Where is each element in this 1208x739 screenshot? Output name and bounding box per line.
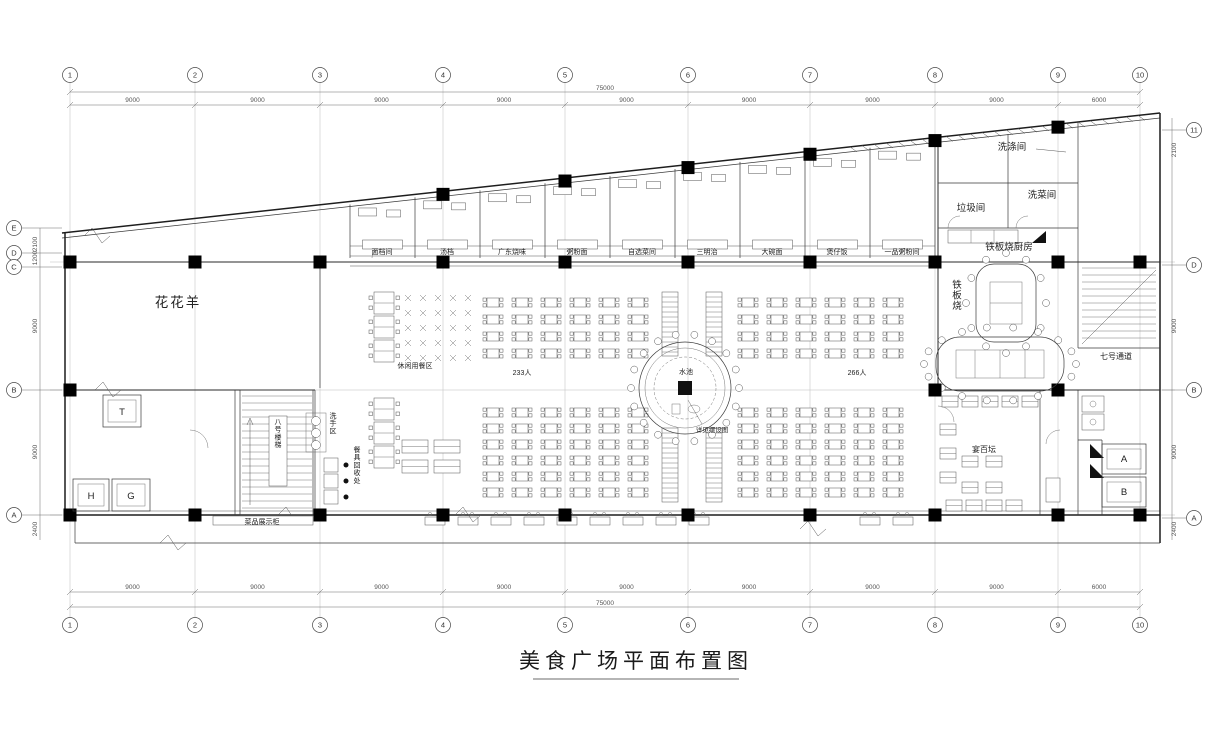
dining-table [483,298,503,307]
chair [396,426,400,430]
seat [1068,348,1075,355]
dining-table [738,456,758,465]
roof-hatch [898,142,905,147]
dim-segment-right: 2100 [1171,142,1178,157]
column-marker [929,384,942,397]
stall-counter [428,240,468,249]
grid-bubble-bottom-3: 3 [318,621,322,630]
grid-bubble-top-6: 6 [686,71,690,80]
dim-segment: 9000 [250,584,265,591]
dining-table [796,424,816,433]
dining-table [738,349,758,358]
dim-segment: 9000 [374,584,389,591]
wall-table [590,517,610,525]
dim-segment: 9000 [865,584,880,591]
dining-table [541,424,561,433]
dining-table [570,315,590,324]
seat [672,438,679,445]
sink-counter [1082,414,1104,430]
column-marker [1134,509,1147,522]
chair [396,450,400,454]
stall-counter [558,240,598,249]
roof-hatch [886,143,893,148]
dining-table [512,315,532,324]
grid-bubble-right-D: D [1191,261,1197,270]
dining-table [767,315,787,324]
dim-segment: 9000 [250,97,265,104]
dining-table [512,488,532,497]
column-marker [682,509,695,522]
wall-table [893,517,913,525]
dining-table [854,349,874,358]
dining-table [738,488,758,497]
column-marker [189,256,202,269]
x-chair [450,355,456,361]
roof-hatch [850,147,857,152]
roof-hatch [874,144,881,149]
dining-table [883,349,903,358]
column-marker [559,256,572,269]
x-chair [465,355,471,361]
dining-table [767,424,787,433]
seat [631,366,638,373]
x-chair [420,310,426,316]
dining-table [825,488,845,497]
dining-table [483,488,503,497]
stall-equipment [879,151,897,159]
dining-table [483,440,503,449]
column-marker [1052,256,1065,269]
seat [1037,275,1044,282]
seat [968,325,975,332]
seat [631,403,638,410]
x-chair [435,310,441,316]
x-chair [405,355,411,361]
column-marker [804,509,817,522]
dining-table [883,408,903,417]
leader-washroom [1036,149,1066,152]
elevator-b-label: B [1121,487,1127,498]
dining-table [628,440,648,449]
stair-8-label: 八号楼梯 [275,419,282,449]
dining-table [854,315,874,324]
column-marker [559,509,572,522]
seat [628,385,635,392]
wall-table [623,517,643,525]
dim-segment: 6000 [1092,584,1107,591]
seat [655,338,662,345]
dining-table [738,472,758,481]
roof-hatch [1090,121,1097,126]
column-marker [1052,384,1065,397]
pool-note-label: 详见摆设图 [696,425,729,434]
chair [396,412,400,416]
seat [672,331,679,338]
dining-table [483,332,503,341]
dining-table [512,349,532,358]
dining-table [628,456,648,465]
overall-dim-top: 75000 [596,85,614,92]
x-chair [450,295,456,301]
chair [369,402,373,406]
drawing-title: 美食广场平面布置图 [519,650,753,673]
x-chair [435,325,441,331]
stall-equipment [424,201,442,209]
tableware-return-label: 餐具回收处 [354,445,361,485]
chair [369,296,373,300]
dining-table [541,298,561,307]
dining-table [599,488,619,497]
stall-equipment [489,194,507,202]
roof-hatch [1042,126,1049,131]
x-chair [465,295,471,301]
dining-table [883,440,903,449]
roof-hatch [946,136,953,141]
dim-segment: 9000 [497,97,512,104]
dining-table [599,472,619,481]
roof-hatch [1114,118,1121,123]
x-chair [405,310,411,316]
brand-area-label: 花花羊 [155,295,202,310]
x-chair [405,295,411,301]
seat [1068,373,1075,380]
dining-area-label: 休闲用餐区 [398,361,433,370]
grid-bubble-top-2: 2 [193,71,197,80]
x-chair [420,355,426,361]
seat [1023,256,1030,263]
dining-table [883,456,903,465]
roof-hatch [970,134,977,139]
wash-room-label: 洗涤间 [998,141,1027,153]
teppanyaki-area-label: 铁板烧 [952,279,962,312]
roof-hatch [994,131,1001,136]
dining-table [738,332,758,341]
pool-label: 水池 [679,367,693,376]
chair [369,306,373,310]
grid-bubble-top-8: 8 [933,71,937,80]
wall-table [656,517,676,525]
dining-table [512,440,532,449]
dining-table [825,424,845,433]
column-marker [1134,256,1147,269]
teppanyaki-counter-bottom [936,337,1064,391]
section-mark-icon [1032,231,1046,243]
dining-table [854,488,874,497]
grid-bubble-bottom-7: 7 [808,621,812,630]
dim-segment: 9000 [497,584,512,591]
stall-counter [493,240,533,249]
dining-table [541,488,561,497]
elevator-t-label: T [119,407,125,418]
stall-label-8: 煲仔饭 [827,247,848,256]
break-symbol [160,535,186,550]
dining-table [883,315,903,324]
dining-table [628,298,648,307]
sink-counter [1082,396,1104,412]
chair [369,320,373,324]
dining-table [541,332,561,341]
dining-table [483,315,503,324]
dim-segment: 9000 [865,97,880,104]
x-chair [465,310,471,316]
chair [369,426,373,430]
column-marker [64,384,77,397]
stall-equipment [907,153,921,160]
seat [983,324,990,331]
dining-table [854,408,874,417]
dim-segment: 9000 [742,97,757,104]
stall-counter [753,240,793,249]
dining-table [570,298,590,307]
chair [369,412,373,416]
seat [1035,393,1042,400]
dining-table [599,440,619,449]
dining-table [796,472,816,481]
stall-label-5: 自选菜间 [628,247,656,256]
dining-table [854,298,874,307]
column-marker [804,148,817,161]
stall-counter [883,240,923,249]
seat [732,366,739,373]
dining-table [767,472,787,481]
dining-table [825,315,845,324]
floor-plan-drawing: 1122334455667788991010EDCBA11DBA90009000… [0,0,1208,739]
grid-bubble-top-4: 4 [441,71,445,80]
hand-wash-label: 洗手区 [330,411,337,435]
dining-table [767,298,787,307]
elevator-h-label: H [88,491,95,502]
dining-table [796,456,816,465]
seat [921,361,928,368]
dining-table [599,408,619,417]
dim-segment: 9000 [619,584,634,591]
dim-segment: 6000 [1092,97,1107,104]
column-marker [559,175,572,188]
seat [640,350,647,357]
grid-bubble-bottom-2: 2 [193,621,197,630]
dining-table [483,456,503,465]
grid-bubble-right-A: A [1191,514,1196,523]
dining-table [767,456,787,465]
wall-table [860,517,880,525]
chair [396,306,400,310]
roof-hatch [1066,123,1073,128]
seat [655,431,662,438]
x-chair [465,340,471,346]
roof-hatch [1006,130,1013,135]
stall-equipment [619,180,637,188]
dining-table [767,349,787,358]
seat [963,300,970,307]
capacity-left-label: 233人 [513,369,532,377]
grid-bubble-left-B: B [11,386,16,395]
dim-segment-left: 9000 [32,444,39,459]
column-marker [1052,509,1065,522]
dining-table [599,424,619,433]
dining-table [483,472,503,481]
dining-table [854,456,874,465]
dining-table [483,424,503,433]
cabinet [1046,478,1060,502]
chair [369,450,373,454]
x-chair [450,325,456,331]
dim-segment: 9000 [374,97,389,104]
tableware-return-fixture [324,458,349,504]
dining-table [883,298,903,307]
dining-table [767,408,787,417]
grid-bubble-right-11: 11 [1190,126,1198,135]
roof-hatch [1078,122,1085,127]
banquet-area-label: 宴百坛 [972,444,996,454]
teppanyaki-kitchen-label: 铁板烧厨房 [985,241,1033,253]
dining-table [738,315,758,324]
column-marker [64,509,77,522]
roof-hatch [1138,115,1145,120]
stall-label-2: 汤档 [440,247,454,256]
grid-bubble-left-D: D [11,249,17,258]
dining-table [628,315,648,324]
column-marker [314,509,327,522]
stall-label-9: 一品粥粉间 [885,247,920,256]
dining-table [796,332,816,341]
column-marker [437,509,450,522]
dining-table [599,298,619,307]
dining-table [796,298,816,307]
stair-arrow [1082,270,1156,344]
grid-bubble-bottom-6: 6 [686,621,690,630]
dining-table [512,424,532,433]
dining-table [570,424,590,433]
x-chair [435,355,441,361]
stair-8 [240,390,313,515]
dim-segment: 9000 [619,97,634,104]
roof-hatch [862,146,869,151]
roof-hatch [922,139,929,144]
chair [396,402,400,406]
dining-table [599,456,619,465]
dining-table [796,315,816,324]
dining-table [767,332,787,341]
stall-equipment [712,174,726,181]
seat [640,419,647,426]
column-marker [314,256,327,269]
dining-table [570,472,590,481]
chair [369,460,373,464]
dining-table [825,408,845,417]
x-chair [420,295,426,301]
dining-table [883,424,903,433]
dim-segment-right: 2400 [1171,521,1178,536]
grid-bubble-top-1: 1 [68,71,72,80]
dim-segment: 9000 [125,97,140,104]
seat [1010,324,1017,331]
grid-bubble-left-C: C [11,263,17,272]
dining-table [570,349,590,358]
roof-hatch [1102,119,1109,124]
column-marker [64,256,77,269]
dining-table [854,424,874,433]
wall-table [491,517,511,525]
dining-table [512,408,532,417]
roof-hatch [910,140,917,145]
dim-segment-left: 2400 [32,521,39,536]
seat [723,350,730,357]
roof-hatch [1018,129,1025,134]
dining-table [628,408,648,417]
column-marker [437,188,450,201]
seat [1073,361,1080,368]
dim-segment: 9000 [989,97,1004,104]
chair [396,296,400,300]
wall-diagonal-top [62,113,1160,233]
dining-table [883,332,903,341]
stall-equipment [452,203,466,210]
dining-table [599,349,619,358]
dim-segment-left: 2100 [32,236,39,251]
dining-table [738,408,758,417]
dining-table [541,456,561,465]
trash-room-label: 垃圾间 [957,202,986,214]
buffet-counter [662,292,678,356]
break-symbol [800,521,826,536]
veg-wash-room-label: 洗菜间 [1028,189,1057,201]
stall-counter [688,240,728,249]
stall-equipment [554,187,572,195]
dining-table [512,472,532,481]
dining-table [854,332,874,341]
dining-table [570,332,590,341]
x-chair [405,340,411,346]
seat [723,419,730,426]
dining-table [512,298,532,307]
dim-segment: 9000 [125,584,140,591]
stall-equipment [777,167,791,174]
grid-bubble-top-7: 7 [808,71,812,80]
x-chair [435,295,441,301]
buffet-counter [706,428,722,502]
elevator-a-label: A [1121,454,1128,465]
seat [983,397,990,404]
dining-table [483,349,503,358]
dining-table [825,440,845,449]
dining-table [570,440,590,449]
elevator-g-label: G [127,491,134,502]
chair [396,344,400,348]
dining-table [883,472,903,481]
column-marker [804,256,817,269]
x-chair [420,325,426,331]
x-chair [435,340,441,346]
wall-diagonal-top-inner [62,118,1160,238]
grid-bubble-bottom-10: 10 [1136,621,1144,630]
dining-table [512,456,532,465]
grid-bubble-bottom-4: 4 [441,621,445,630]
dining-table [738,298,758,307]
seat [1003,350,1010,357]
dim-segment-left: 1200 [32,250,39,265]
dining-table [796,408,816,417]
furniture [84,115,1156,550]
grid-bubble-top-5: 5 [563,71,567,80]
seat [691,331,698,338]
grid-bubble-top-3: 3 [318,71,322,80]
column-marker [682,161,695,174]
x-chair [450,340,456,346]
dining-table [825,332,845,341]
stall-label-3: 广东烧味 [498,247,526,256]
column-marker [1052,121,1065,134]
dining-table [570,488,590,497]
